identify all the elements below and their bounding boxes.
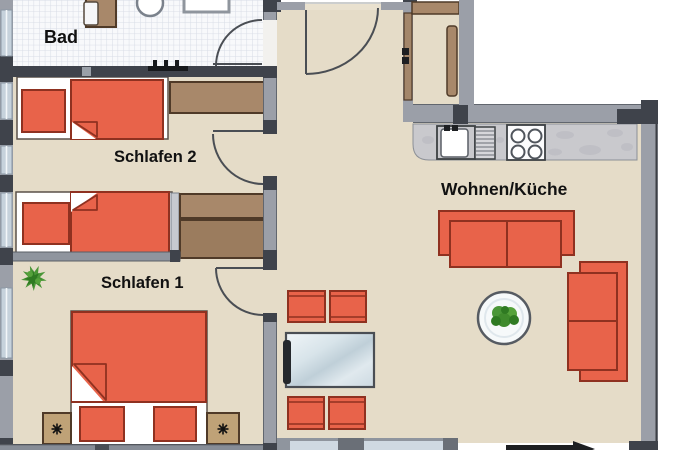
- svg-text:Wohnen/Küche: Wohnen/Küche: [441, 179, 568, 199]
- svg-text:Schlafen 1: Schlafen 1: [101, 274, 184, 292]
- svg-text:Bad: Bad: [44, 27, 78, 47]
- svg-text:Schlafen 2: Schlafen 2: [114, 148, 197, 166]
